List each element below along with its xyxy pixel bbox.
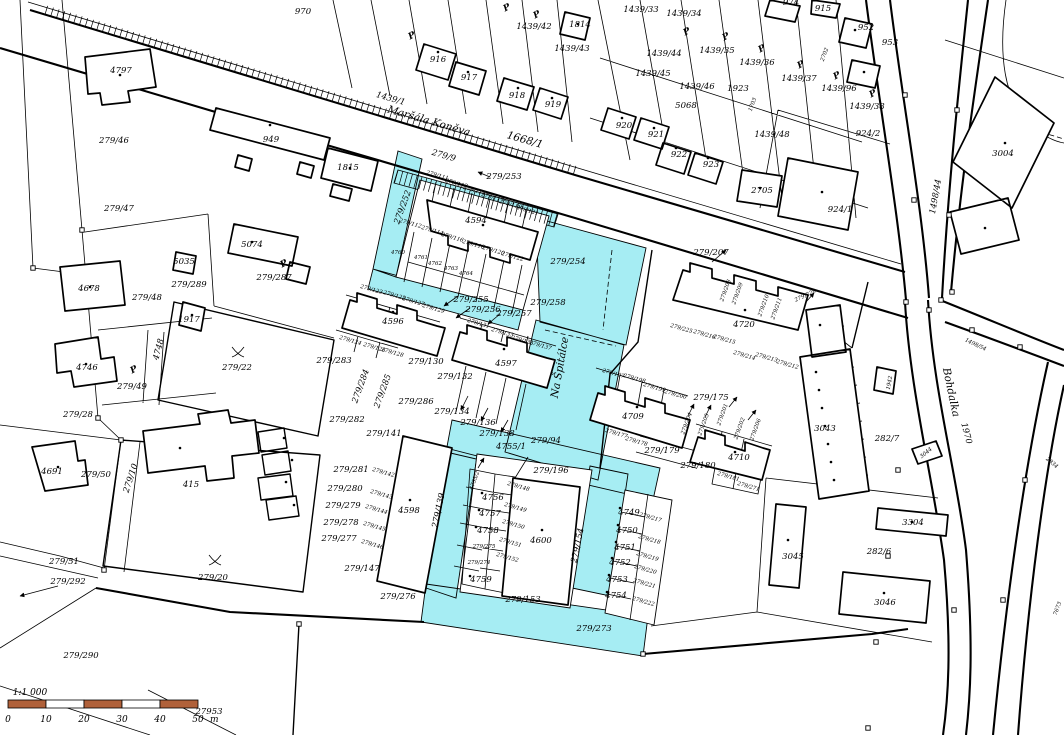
parcel-label: 279/50 (80, 470, 111, 480)
parcel-label: 279/147 (343, 564, 380, 574)
parcel-label: 4750 (615, 526, 638, 536)
parcel-label: 4709 (621, 412, 644, 422)
entrance-p-mark: P (531, 9, 543, 22)
boundary-node-marker (955, 108, 959, 112)
parcel-label: 279/196 (532, 466, 569, 476)
parcel-label: 4598 (397, 506, 420, 516)
entrance-p-mark: P (501, 2, 513, 15)
building-dot (293, 504, 296, 507)
parcel-label: 1498/44 (928, 178, 944, 215)
parcel-label: 4597 (494, 359, 517, 369)
boundary-node-marker (297, 622, 301, 626)
building-dot (409, 499, 412, 502)
parcel-label: 279/273 (575, 624, 611, 634)
parcel-label: 279/285 (372, 373, 394, 411)
parcel-label: Bohdalka (940, 366, 962, 418)
parcel-label: 279/212 (775, 359, 800, 371)
parcel-label: 1923 (727, 84, 749, 94)
parcel-label: 1917 (178, 315, 200, 325)
scale-tick-label: 50 (192, 715, 204, 725)
parcel-label: 279/20 (197, 573, 228, 583)
parcel-label: 279/286 (397, 397, 434, 407)
parcel-label: 279/134 (433, 407, 469, 417)
parcel-label: 1814 (569, 20, 591, 30)
parcel-label: 4755/1 (495, 442, 526, 452)
parcel-label: 4752 (608, 558, 631, 568)
parcel-label: 923 (703, 160, 719, 170)
cadastral-map-canvas[interactable]: PPPPPPPPPPP 97097491595295318141439/4214… (0, 0, 1064, 735)
building-dot (787, 539, 790, 542)
parcel-label: 2702 (820, 47, 831, 64)
boundary-node-marker (904, 300, 908, 304)
parcel-label: 279/48 (131, 293, 162, 303)
entrance-p-mark: P (128, 364, 140, 377)
parcel-label: 279/214 (732, 350, 757, 362)
parcel-label: 1439/46 (679, 82, 715, 92)
boundary-node-marker (80, 228, 84, 232)
parcel-label: 279/213 (754, 352, 779, 364)
parcel-label: 921 (648, 130, 664, 140)
boundary-node-marker (903, 93, 907, 97)
parcel-label: 924/2 (856, 129, 881, 139)
building-dot (819, 324, 822, 327)
parcel-label: 279/280 (326, 484, 363, 494)
parcel-label: 4759 (469, 575, 492, 585)
parcel-label: 279/278 (322, 518, 359, 528)
scale-tick-label: 40 (153, 715, 166, 725)
building-dot (854, 29, 857, 32)
parcel-label: 279/290 (62, 651, 99, 661)
boundary-node-marker (927, 308, 931, 312)
building-dot (653, 127, 656, 130)
parcel-label: 279/254 (549, 257, 585, 267)
building-dot (269, 124, 272, 127)
parcel-label: 279/141 (365, 429, 401, 439)
building-dot (437, 51, 440, 54)
parcel-label: 917 (461, 73, 478, 83)
building-dot (179, 447, 182, 450)
scale-unit: m (210, 715, 219, 725)
parcel-label: 279/51 (48, 557, 79, 567)
parcel-label: 279/287 (255, 273, 292, 283)
parcel-label: 7673 (1053, 601, 1064, 617)
parcel-label: 918 (509, 91, 526, 101)
parcel-label: 279/153 (504, 595, 540, 605)
building-dot (675, 147, 678, 150)
building-dot (707, 157, 710, 160)
building-dot (833, 479, 836, 482)
building-dot (827, 443, 830, 446)
building-dot (517, 87, 520, 90)
label-pointer-arrow (20, 586, 58, 596)
parcel-label: 279/136 (459, 418, 496, 428)
parcel-label: 4797 (109, 66, 132, 76)
building-dot (821, 191, 824, 194)
label-pointer-arrow (748, 410, 756, 420)
building-dot (541, 529, 544, 532)
parcel-label: 279/144 (364, 504, 389, 516)
parcel-label: 5035 (173, 257, 195, 267)
parcel-label: 2705 (750, 186, 773, 196)
parcel-label: 1439/37 (781, 74, 817, 84)
parcel-label: 974 (783, 0, 799, 8)
building-dot (984, 227, 987, 230)
parcel-label: 279/207 (692, 248, 729, 258)
scale-tick-label: 10 (40, 715, 52, 725)
entrance-p-mark: P (795, 59, 807, 72)
parcel-label: 1703 (748, 97, 759, 113)
parcel-label: 279/47 (103, 204, 134, 214)
parcel-label: 279/292 (49, 577, 85, 587)
boundary-node-marker (1023, 478, 1027, 482)
building-dot (818, 389, 821, 392)
building-dot (883, 592, 886, 595)
parcel-label: 279/225 (669, 323, 694, 335)
parcel-label: 3045 (782, 552, 804, 562)
entrance-p-mark: P (831, 70, 843, 83)
building-dot (291, 459, 294, 462)
parcel-label: 279/284 (350, 368, 372, 406)
parcel-label: 920 (616, 121, 633, 131)
boundary-node-marker (939, 298, 943, 302)
parcel-label: 953 (882, 38, 898, 48)
parcel-label: 4763 (443, 266, 458, 272)
scale-tick-label: 0 (5, 715, 11, 725)
parcel-label: 3043 (814, 424, 836, 434)
parcel-label: 279/175 (692, 393, 728, 403)
parcel-label: 279/143 (369, 489, 394, 501)
parcel-label: 279/132 (436, 372, 472, 382)
parcel-label: 4600 (529, 536, 552, 546)
parcel-label: 922 (671, 150, 687, 160)
parcel-label: 1439/42 (516, 22, 551, 32)
scale-tick-label: 30 (116, 715, 128, 725)
parcel-label: 1498/54 (964, 338, 988, 353)
parcel-label: 4746 (75, 363, 98, 373)
parcel-label: 952 (858, 23, 874, 33)
building-dot (551, 97, 554, 100)
entrance-p-mark: P (681, 26, 693, 39)
parcel-label: 279/145 (362, 521, 387, 533)
boundary-node-marker (952, 608, 956, 612)
parcel-label: 279/257 (495, 309, 532, 319)
parcel-label: 279/180 (679, 461, 716, 471)
parcel-label: 4756 (481, 493, 504, 503)
parcel-label: 919 (545, 100, 562, 110)
parcel-label: 970 (295, 7, 312, 17)
scale-tick-label: 20 (77, 715, 90, 725)
building-dot (621, 117, 624, 120)
building-dot (283, 437, 286, 440)
parcel-label: 1439/43 (554, 44, 589, 54)
parcel-label: 5074 (241, 240, 263, 250)
parcel-label: 279/274 (467, 560, 491, 566)
parcel-label: 279/283 (315, 356, 351, 366)
entrance-p-mark: P (867, 88, 879, 101)
parcel-label: 279/199 (642, 382, 667, 394)
parcel-label: 279/258 (529, 298, 566, 308)
parcel-label: 1970 (958, 422, 973, 446)
parcel-label: 279/271 (736, 481, 761, 493)
parcel-label: 4753 (605, 575, 628, 585)
parcel-label: 279/138 (478, 429, 515, 439)
parcel-label: 279/201 (716, 403, 730, 427)
parcel-label: 279/9 (429, 148, 457, 165)
parcel-label: 1439/38 (849, 102, 885, 112)
parcel-label: 279/49 (116, 382, 147, 392)
parcel-label: 279/253 (485, 172, 521, 182)
parcel-label: 279/215 (712, 334, 737, 346)
parcel-label: 279/255 (452, 295, 488, 305)
parcel-label: 282/6 (866, 547, 892, 557)
parcel-label: 3046 (874, 598, 896, 608)
boundary-node-marker (1001, 598, 1005, 602)
parcel-label: 279/46 (98, 136, 129, 146)
scale-bar-segment (84, 700, 122, 708)
boundary-node-marker (102, 568, 106, 572)
parcel-label: 4754 (604, 591, 627, 601)
scale-ratio: 1:1 000 (13, 688, 48, 698)
building-dot (744, 309, 747, 312)
parcel-label: 4751 (613, 543, 636, 553)
parcel-label: 4594 (464, 216, 487, 226)
parcel-label: 1439/96 (821, 84, 857, 94)
parcel-label: 279/200 (663, 389, 688, 401)
boundary-node-marker (970, 328, 974, 332)
building-dot (503, 348, 506, 351)
parcel-label: 415 (182, 480, 199, 490)
boundary-node-marker (866, 726, 870, 730)
entrance-p-mark: P (756, 43, 768, 56)
parcel-label: 1439/35 (699, 46, 734, 56)
building-dot (285, 481, 288, 484)
parcel-label: 1439/48 (754, 130, 790, 140)
parcel-label: 4720 (732, 320, 755, 330)
parcel-label: 4764 (458, 271, 473, 277)
parcel-label: 1439/45 (635, 69, 670, 79)
boundary-node-marker (31, 266, 35, 270)
tree-symbol (209, 555, 221, 565)
tree-symbol (232, 347, 244, 357)
parcel-label: 279/94 (530, 436, 561, 446)
parcel-label: 4710 (727, 453, 750, 463)
scale-bar-segment (160, 700, 198, 708)
parcel-label: 279/279 (324, 501, 361, 511)
parcel-label: 279/277 (320, 534, 357, 544)
building-dot (1004, 142, 1007, 145)
boundary-node-marker (874, 640, 878, 644)
boundary-node-marker (119, 438, 123, 442)
building-dot (815, 371, 818, 374)
building-dot (636, 406, 639, 409)
parcel-label: 3004 (992, 149, 1014, 159)
parcel-label: 279/142 (371, 467, 396, 479)
parcel-label: 1439/34 (666, 9, 701, 19)
parcel-label: 1439/33 (623, 5, 658, 15)
boundary-node-marker (950, 290, 954, 294)
parcel-label: 3304 (902, 518, 924, 528)
parcel-label: 279/281 (332, 465, 368, 475)
scale-bar-segment (8, 700, 46, 708)
parcel-label: 916 (430, 55, 447, 65)
parcel-label: 279/128 (380, 347, 405, 359)
cadastral-map-viewport[interactable]: PPPPPPPPPPP 97097491595295318141439/4214… (0, 0, 1064, 735)
parcel-label: 4749 (617, 508, 640, 518)
parcel-label: 4760 (390, 250, 405, 256)
scale-bar-segment (122, 700, 160, 708)
parcel-label: 4596 (381, 317, 404, 327)
parcel-label: 4761 (413, 255, 428, 261)
parcel-label: 5068 (675, 101, 697, 111)
boundary-node-marker (912, 198, 916, 202)
parcel-label: 279/146 (360, 539, 385, 551)
building-dot (392, 311, 395, 314)
parcel-label: 4762 (427, 261, 442, 267)
building-dot (830, 461, 833, 464)
parcel-label: 915 (815, 4, 831, 14)
parcel-label: 282/7 (874, 434, 900, 444)
parcel-label: 1439/44 (646, 49, 681, 59)
parcel-label: 279/130 (407, 357, 444, 367)
boundary-node-marker (947, 213, 951, 217)
scale-bar-segments (8, 700, 198, 708)
scale-bar-segment (46, 700, 84, 708)
label-pointer-arrow (729, 397, 737, 407)
parcel-label: 924/1 (828, 205, 853, 215)
parcel-label: 279/202 (733, 416, 747, 441)
entrance-p-mark: P (720, 31, 732, 44)
parcel-label: 4758 (476, 526, 499, 536)
scale-bar: 1:1 000 01020304050 m (5, 688, 218, 725)
parcel-label: 2834 (1044, 456, 1060, 471)
boundary-node-marker (96, 416, 100, 420)
parcel-label: 279/179 (643, 446, 680, 456)
parcel-label: 4678 (77, 284, 100, 294)
parcel-label: 949 (263, 135, 280, 145)
building-dot (821, 407, 824, 410)
parcel-label: 279/276 (379, 592, 416, 602)
boundary-node-marker (896, 468, 900, 472)
parcel-label: 279/282 (328, 415, 364, 425)
parcel-label: 279/22 (221, 363, 252, 373)
parcel-label: 279/28 (62, 410, 93, 420)
parcel-label: 279/206 (749, 417, 763, 442)
boundary-node-marker (641, 652, 645, 656)
parcel-label: 279/275 (472, 544, 496, 550)
parcel-label: 4691 (40, 467, 63, 477)
parcel-label: 279/10 (121, 462, 140, 495)
parcel-label: 1815 (337, 163, 359, 173)
parcel-label: 4757 (478, 509, 501, 519)
boundary-node-marker (1018, 345, 1022, 349)
parcel-label: 279/289 (170, 280, 207, 290)
parcel-label: 1439/36 (739, 58, 775, 68)
building-dot (863, 71, 866, 74)
